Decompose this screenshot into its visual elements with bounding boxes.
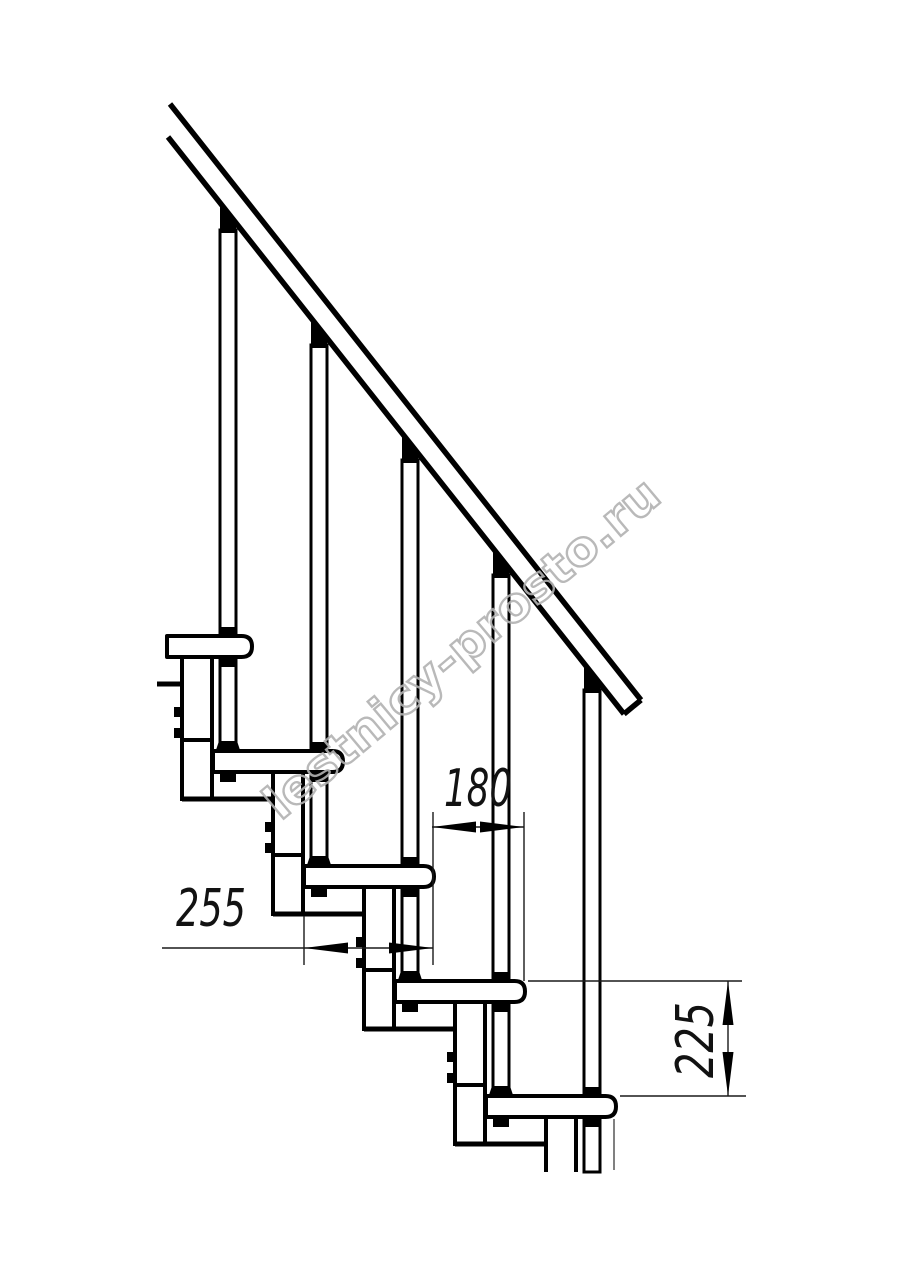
nut (402, 888, 418, 897)
column-module-4 (455, 1002, 485, 1144)
tread-4 (395, 981, 525, 1002)
dimension-label-225: 225 (666, 1002, 726, 1078)
rod-foot-5 (489, 1086, 513, 1095)
nut (493, 1118, 509, 1127)
tread-1 (167, 636, 252, 657)
column-module-3 (364, 887, 394, 1029)
nut (311, 888, 327, 897)
rod-foot-3 (307, 856, 331, 865)
dimension-label-255: 255 (176, 879, 246, 939)
baluster-rod-1 (220, 230, 236, 751)
collar-3 (402, 857, 418, 867)
staircase-drawing: 255 180 225 lestnicy-prosto.ru (0, 0, 914, 1280)
dimension-label-180: 180 (444, 759, 512, 819)
tread-3 (304, 866, 434, 887)
handrail-end-cap (624, 700, 641, 714)
nut (584, 1118, 600, 1127)
collar-5 (584, 1087, 600, 1097)
nut (220, 658, 236, 667)
nut (402, 1003, 418, 1012)
collar-4 (493, 972, 509, 982)
column-module-5 (546, 1117, 576, 1172)
nut (493, 1003, 509, 1012)
rod-foot-2 (216, 741, 240, 750)
collar-1 (220, 627, 236, 637)
tread-5 (486, 1096, 616, 1117)
rod-foot-4 (398, 971, 422, 980)
technical-drawing-page: 255 180 225 lestnicy-prosto.ru (0, 0, 914, 1280)
dimension-rise: 225 (528, 981, 746, 1096)
nut (220, 773, 236, 782)
column-module-1 (182, 657, 212, 799)
